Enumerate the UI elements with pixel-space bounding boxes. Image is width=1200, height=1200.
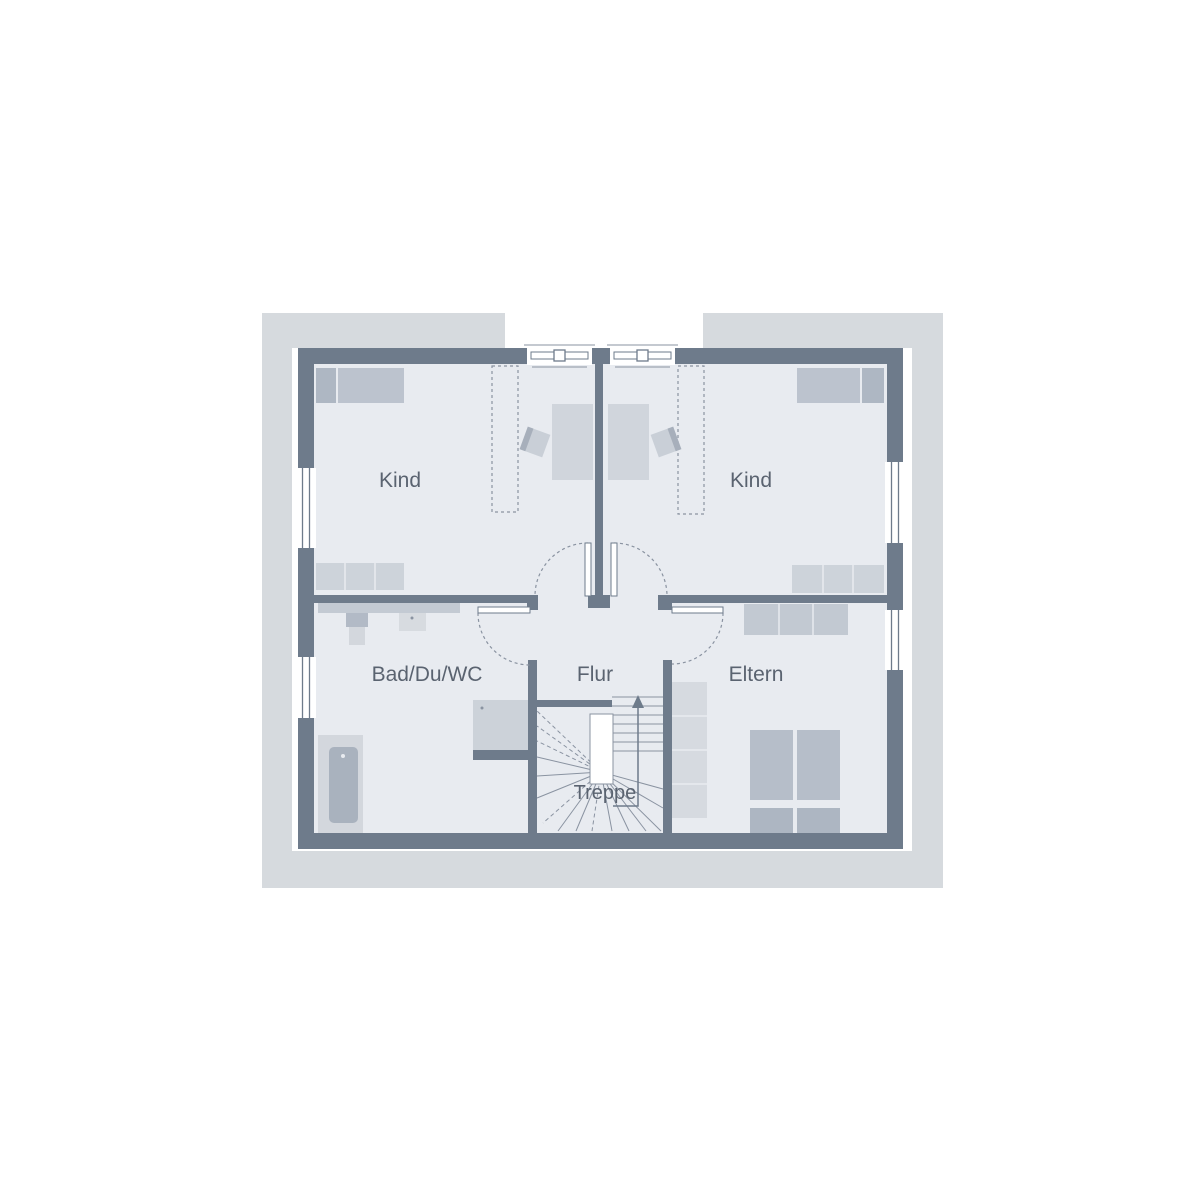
door-leaf-kind-right	[611, 543, 617, 596]
floor-plan-page: Kind Kind Bad/Du/WC Flur Eltern Treppe	[0, 0, 1200, 1200]
window-left-lower	[296, 657, 316, 718]
window-right-upper	[885, 462, 905, 543]
washbasin	[399, 613, 426, 631]
dresser	[316, 563, 404, 590]
roof-band-right	[912, 348, 943, 888]
wall-stair-stub	[537, 700, 612, 707]
room-label-kind-right: Kind	[730, 469, 772, 492]
wall-shower-stub	[473, 750, 537, 760]
window-left-upper	[296, 468, 316, 548]
roof-band-top-left	[262, 313, 505, 348]
stair-void	[590, 714, 613, 784]
door-leaf-parents	[672, 607, 723, 613]
door-leaf-kind-left	[585, 543, 591, 596]
dresser	[792, 565, 884, 593]
bed-mattress	[797, 368, 860, 403]
vanity-counter	[318, 603, 460, 613]
wall-exterior-left	[298, 348, 314, 849]
wardrobe	[744, 604, 848, 635]
wall-partition-center	[595, 364, 603, 596]
bed	[797, 368, 884, 403]
wall-exterior-right	[887, 348, 903, 849]
desk	[608, 404, 649, 480]
wall-stairwell-left	[528, 660, 537, 833]
door-leaf-bath	[478, 607, 530, 613]
wall-middle-left	[314, 595, 527, 603]
roof-band-left	[262, 348, 292, 888]
room-label-bath: Bad/Du/WC	[372, 663, 483, 686]
bathtub	[318, 735, 363, 833]
room-label-parents: Eltern	[729, 663, 784, 686]
room-label-stairs: Treppe	[574, 782, 637, 804]
shelf-column	[672, 682, 707, 818]
bed-pillow	[316, 368, 336, 403]
desk	[552, 404, 593, 480]
wall-stairwell-right	[663, 660, 672, 833]
floor-plan-drawing: Kind Kind Bad/Du/WC Flur Eltern Treppe	[0, 0, 1200, 1200]
wall-partition-center-end	[588, 595, 610, 608]
wall-middle-right	[658, 595, 887, 603]
wall-jamb-right	[658, 595, 672, 610]
window-right-lower	[885, 610, 905, 670]
roof-band-bottom	[292, 851, 912, 888]
wall-exterior-bottom	[298, 833, 903, 849]
bed	[316, 368, 404, 403]
roof-band-top-right	[703, 313, 943, 348]
window-top-left	[524, 345, 595, 367]
window-top-right	[607, 345, 678, 367]
bed-pillow	[862, 368, 884, 403]
toilet	[346, 613, 368, 645]
bed-mattress	[338, 368, 404, 403]
wall-exterior-top	[298, 348, 903, 364]
shower	[473, 700, 528, 750]
room-label-hall: Flur	[577, 663, 613, 686]
room-label-kind-left: Kind	[379, 469, 421, 492]
